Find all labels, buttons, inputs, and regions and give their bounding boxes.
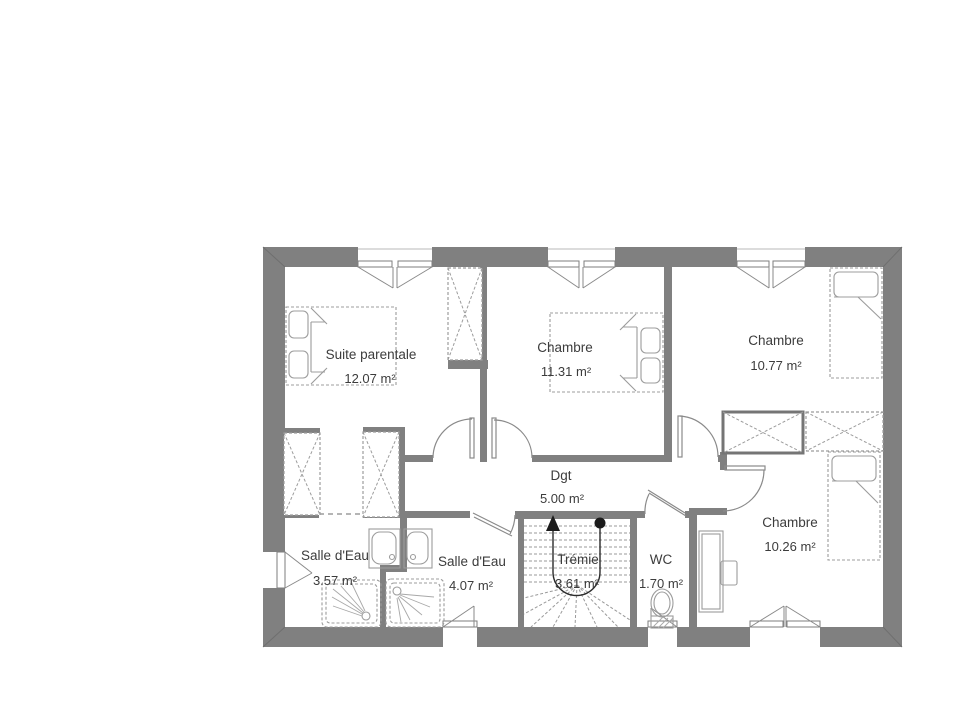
- wardrobe-icon: [284, 433, 320, 515]
- room-area: 11.31 m²: [541, 364, 592, 379]
- room-name: Chambre: [748, 333, 804, 348]
- window-chambre1-icon: [548, 249, 615, 288]
- room-label-wc: WC 1.70 m²: [639, 552, 684, 591]
- sink-icon: [404, 529, 432, 568]
- interior-walls: [280, 247, 727, 627]
- room-name: Suite parentale: [326, 347, 417, 362]
- room-label-chambre-2: Chambre 10.77 m²: [748, 333, 804, 373]
- room-area: 1.70 m²: [639, 576, 684, 591]
- window-salle-eau2-icon: [443, 606, 477, 627]
- room-label-salle-eau-1: Salle d'Eau 3.57 m²: [301, 548, 369, 588]
- room-name: Salle d'Eau: [301, 548, 369, 563]
- room-label-chambre-1: Chambre 11.31 m²: [537, 340, 593, 379]
- room-area: 12.07 m²: [344, 371, 396, 386]
- room-name: WC: [650, 552, 673, 567]
- room-area: 10.26 m²: [764, 539, 816, 554]
- floor-plan: Suite parentale 12.07 m² Chambre 11.31 m…: [0, 0, 960, 704]
- room-name: Salle d'Eau: [438, 554, 506, 569]
- room-area: 3.57 m²: [313, 573, 358, 588]
- room-label-salle-eau-2: Salle d'Eau 4.07 m²: [438, 554, 506, 593]
- room-name: Trémie: [557, 552, 599, 567]
- single-bed-icon: [830, 268, 882, 378]
- room-label-degagement: Dgt 5.00 m²: [540, 468, 585, 506]
- room-area: 10.77 m²: [750, 358, 802, 373]
- door-chambre3-icon: [723, 466, 765, 511]
- window-chambre2-icon: [737, 249, 805, 288]
- desk-icon: [699, 531, 723, 612]
- door-salle-eau2-icon: [473, 513, 515, 536]
- room-label-chambre-3: Chambre 10.26 m²: [762, 515, 818, 554]
- wardrobe-icon: [806, 412, 883, 451]
- door-chambre2-icon: [678, 416, 718, 457]
- staircase: [524, 515, 630, 627]
- room-name: Chambre: [762, 515, 818, 530]
- wardrobe-icon: [723, 412, 803, 453]
- door-suite-parentale-icon: [433, 418, 474, 458]
- wardrobe-icon: [363, 432, 399, 517]
- wardrobe-icon: [448, 268, 482, 360]
- sink-icon: [369, 529, 400, 568]
- window-suite-parentale-icon: [358, 249, 432, 288]
- room-label-tremie: Trémie 3.61 m²: [555, 552, 600, 591]
- door-chambre1-icon: [492, 418, 532, 458]
- room-area: 3.61 m²: [555, 576, 600, 591]
- shower-icon: [386, 579, 444, 627]
- single-bed-icon: [828, 452, 880, 560]
- room-area: 4.07 m²: [449, 578, 494, 593]
- room-label-suite-parentale: Suite parentale 12.07 m²: [326, 347, 417, 386]
- door-wc-icon: [645, 490, 686, 516]
- room-name: Dgt: [550, 468, 571, 483]
- room-name: Chambre: [537, 340, 593, 355]
- room-area: 5.00 m²: [540, 491, 585, 506]
- flight-start-dot-icon: [595, 518, 606, 529]
- window-chambre3-icon: [750, 606, 820, 627]
